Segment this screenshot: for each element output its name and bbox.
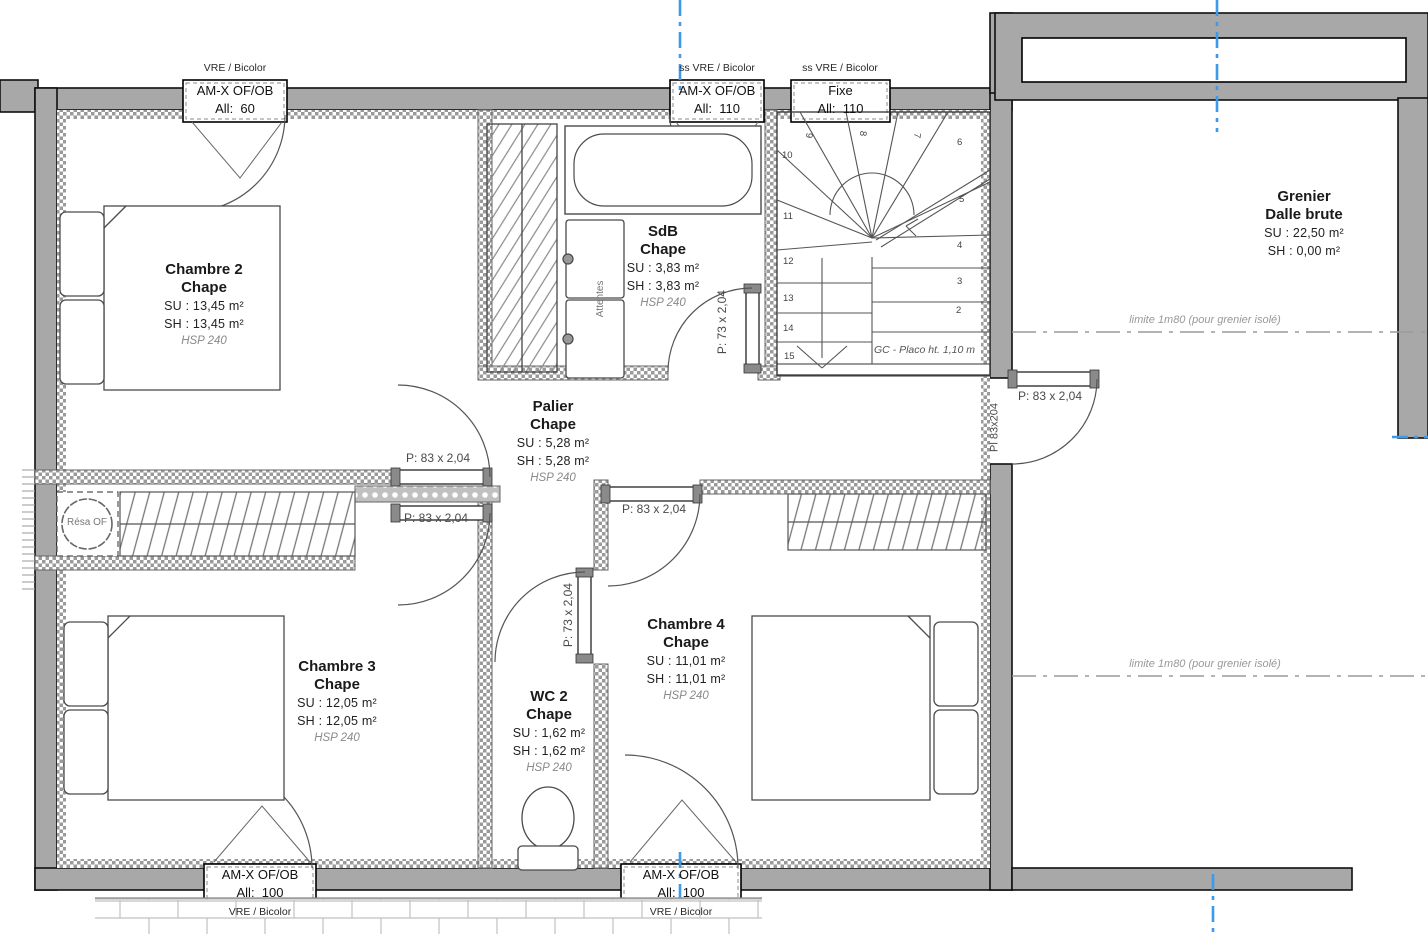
window-head-label: VRE / Bicolor xyxy=(183,62,287,74)
toilet xyxy=(518,787,578,870)
attentes-label: Attentes xyxy=(595,255,607,343)
room-name: Chambre 3 xyxy=(252,658,422,676)
window-type-label: AM-X OF/OB xyxy=(183,83,287,98)
stair-step-number: 6 xyxy=(957,137,962,148)
room-su: SU : 22,50 m² xyxy=(1219,226,1389,241)
stair-step-number: 4 xyxy=(957,240,962,251)
stair-pony-wall xyxy=(777,364,990,376)
room-finish: Chape xyxy=(252,676,422,694)
stair-gc-note: GC - Placo ht. 1,10 m xyxy=(874,344,999,356)
window-allege-label: All: 60 xyxy=(183,101,287,116)
stair-step-number: 5 xyxy=(959,194,964,205)
room-su: SU : 11,01 m² xyxy=(606,654,766,669)
window-allege-label: All: 100 xyxy=(204,885,316,900)
floor-plan-drawing xyxy=(0,0,1428,934)
room-name: Chambre 2 xyxy=(119,261,289,279)
room-hsp: HSP 240 xyxy=(464,762,634,776)
stair-step-number: 13 xyxy=(783,293,794,304)
window-type-label: AM-X OF/OB xyxy=(204,867,316,882)
room-label-chambre-4: Chambre 4 Chape SU : 11,01 m² SH : 11,01… xyxy=(606,616,766,703)
window-head-label: ss VRE / Bicolor xyxy=(788,62,892,74)
window-foot-label: VRE / Bicolor xyxy=(621,906,741,918)
stair-step-number: 7 xyxy=(911,132,922,138)
room-hsp: HSP 240 xyxy=(119,335,289,349)
door-label-placard: Pl 83x204 xyxy=(989,382,1002,472)
room-sh: SH : 12,05 m² xyxy=(252,714,422,729)
room-su: SU : 5,28 m² xyxy=(468,436,638,451)
resa-of-label: Résa OF xyxy=(61,517,113,529)
door-label-sdb: P: 73 x 2,04 xyxy=(715,278,729,366)
door-label-grenier: P: 83 x 2,04 xyxy=(1006,389,1094,403)
room-sh: SH : 13,45 m² xyxy=(119,317,289,332)
room-sh: SH : 11,01 m² xyxy=(606,672,766,687)
bathtub xyxy=(565,126,761,214)
grenier-roof-window-band xyxy=(1022,38,1406,82)
stair-step-number: 15 xyxy=(784,351,795,362)
shower xyxy=(487,124,557,372)
room-sh: SH : 1,62 m² xyxy=(464,744,634,759)
window-allege-label: All: 100 xyxy=(621,885,741,900)
room-finish: Chape xyxy=(119,279,289,297)
room-name: SdB xyxy=(578,223,748,241)
room-finish: Chape xyxy=(468,416,638,434)
stair-step-number: 2 xyxy=(956,305,961,316)
room-su: SU : 1,62 m² xyxy=(464,726,634,741)
door-label-wc: P: 73 x 2,04 xyxy=(561,571,575,659)
window-type-label: AM-X OF/OB xyxy=(670,83,764,98)
door-label-chambre2: P: 83 x 2,04 xyxy=(396,451,480,465)
room-finish: Chape xyxy=(464,706,634,724)
window-type-label: AM-X OF/OB xyxy=(621,867,741,882)
stair-step-number: 11 xyxy=(783,211,793,222)
room-label-chambre-2: Chambre 2 Chape SU : 13,45 m² SH : 13,45… xyxy=(119,261,289,348)
limite-annotation-lower: limite 1m80 (pour grenier isolé) xyxy=(1050,658,1360,671)
stair-step-number: 10 xyxy=(782,150,793,161)
stair-step-number: 14 xyxy=(783,323,794,334)
pocket-wall xyxy=(355,486,500,502)
window-allege-label: All: 110 xyxy=(791,101,890,116)
room-hsp: HSP 240 xyxy=(606,690,766,704)
stair-step-number: 12 xyxy=(783,256,794,267)
room-hsp: HSP 240 xyxy=(468,472,638,486)
window-type-label: Fixe xyxy=(791,83,890,98)
door-label-chambre4: P: 83 x 2,04 xyxy=(612,502,696,516)
room-name: Chambre 4 xyxy=(606,616,766,634)
room-label-palier: Palier Chape SU : 5,28 m² SH : 5,28 m² H… xyxy=(468,398,638,485)
room-label-chambre-3: Chambre 3 Chape SU : 12,05 m² SH : 12,05… xyxy=(252,658,422,745)
stair-step-number: 9 xyxy=(803,132,814,138)
stair-step-number: 3 xyxy=(957,276,962,287)
room-su: SU : 12,05 m² xyxy=(252,696,422,711)
room-su: SU : 13,45 m² xyxy=(119,299,289,314)
window-head-label: ss VRE / Bicolor xyxy=(665,62,769,74)
room-finish: Chape xyxy=(606,634,766,652)
stair-step-number: 8 xyxy=(857,130,868,136)
room-name: Grenier xyxy=(1219,188,1389,206)
door-label-chambre3: P: 83 x 2,04 xyxy=(394,511,478,525)
room-hsp: HSP 240 xyxy=(252,732,422,746)
room-label-grenier: Grenier Dalle brute SU : 22,50 m² SH : 0… xyxy=(1219,188,1389,259)
room-finish: Dalle brute xyxy=(1219,206,1389,224)
window-foot-label: VRE / Bicolor xyxy=(204,906,316,918)
closet-chambre3 xyxy=(120,492,355,556)
window-allege-label: All: 110 xyxy=(670,101,764,116)
room-sh: SH : 5,28 m² xyxy=(468,454,638,469)
room-sh: SH : 0,00 m² xyxy=(1219,244,1389,259)
closet-chambre4 xyxy=(788,494,986,550)
room-name: Palier xyxy=(468,398,638,416)
floor-plan: Chambre 2 Chape SU : 13,45 m² SH : 13,45… xyxy=(0,0,1428,934)
limite-annotation-upper: limite 1m80 (pour grenier isolé) xyxy=(1050,314,1360,327)
